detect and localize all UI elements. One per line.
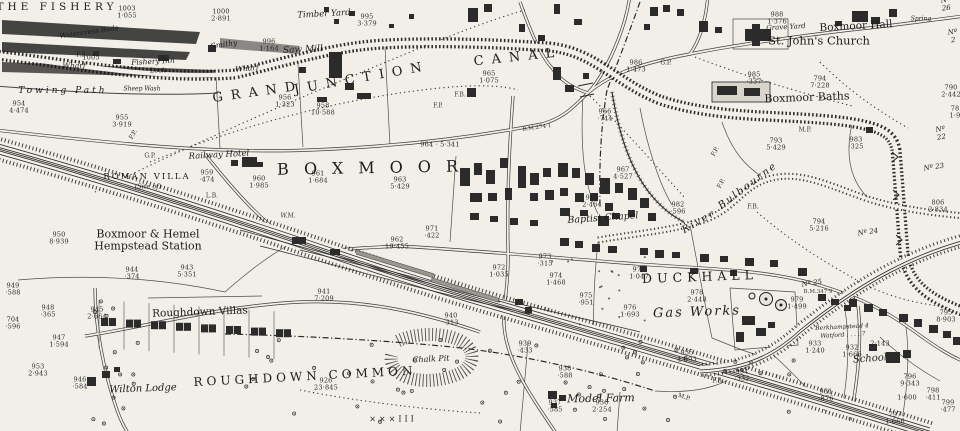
parcel-806: 806 2·834: [928, 200, 948, 215]
parcel-704: 704 ·596: [5, 317, 20, 332]
label-wharf-2: Wharf: [235, 64, 259, 74]
label-lock-no23: Nº 23: [923, 163, 944, 174]
parcel-962: 962 19·455: [385, 237, 409, 252]
parcel-1005: 1005: [82, 54, 99, 61]
label-fp-3: F.P.: [717, 178, 728, 190]
parcel-996: 996 1·164: [259, 39, 279, 54]
label-canal: CANAL: [473, 46, 563, 70]
parcel-979: 979 1·499: [787, 297, 807, 312]
parcel-797: 797 1·666: [885, 412, 905, 427]
label-chalk-pit: Chalk Pit: [412, 355, 450, 366]
label-lock-no25: Nº 25: [801, 279, 822, 290]
label-lock: Lock: [150, 67, 166, 74]
label-fp-1: F.P.: [433, 104, 443, 111]
parcel-947: 947 1·594: [49, 335, 69, 350]
parcel-955: 955 3·919: [112, 115, 132, 130]
label-bm-1: B.M.274·1: [522, 123, 551, 133]
parcel-1000: 1000 2·891: [211, 9, 231, 24]
parcel-968: 968 2·464: [582, 195, 602, 210]
parcel-794a: 794 7·228: [810, 76, 830, 91]
parcel-960: 960 1·985: [249, 176, 269, 191]
parcel-973: 973 ·315: [537, 254, 552, 269]
parcel-966: 966 ·744: [597, 109, 612, 124]
parcel-940: 940 ·313: [443, 313, 458, 328]
parcel-935: 935 4·693: [677, 350, 697, 365]
parcel-978: 978 2·448: [687, 290, 707, 305]
parcel-977: 977 1·047: [629, 267, 649, 282]
parcel-795: 795 8·903: [936, 310, 956, 325]
label-st-johns-church: St. John's Church: [768, 35, 870, 48]
label-lock-no21: Nº 2: [947, 29, 958, 46]
parcel-995: 995 3·379: [357, 14, 377, 29]
label-lock-no24: Nº 24: [857, 228, 878, 239]
parcel-945: 945 2·664: [87, 307, 107, 322]
parcel-986: 986 1·473: [626, 60, 646, 75]
label-spring: Spring: [911, 17, 931, 24]
parcel-971: 971 ·422: [424, 226, 439, 241]
label-boxmoor: BOXMOOR: [277, 157, 473, 178]
label-fb-4: F.B.: [712, 379, 723, 386]
label-wm: W.M.: [280, 214, 295, 221]
label-duckhall: DUCKHALL: [642, 268, 758, 286]
label-baptist-chapel: Baptist Chapel: [567, 211, 639, 227]
parcel-799: 799 ·477: [940, 400, 955, 415]
parcel-967: 967 4·527: [613, 167, 633, 182]
label-bulbourne: Bulbourne: [716, 160, 779, 212]
label-gas-works: Gas Works: [653, 304, 741, 322]
parcel-793: 793 5·429: [766, 138, 786, 153]
label-saw-mill: Saw Mill: [283, 44, 323, 56]
label-boxmoor-baths: Boxmoor Baths: [764, 90, 850, 105]
label-wilton-lodge: Wilton Lodge: [109, 382, 177, 396]
label-gp-2: G.P.: [660, 61, 671, 68]
parcel-983: 983 ·325: [848, 137, 863, 152]
label-school: School: [853, 352, 888, 366]
label-wharf-1: Wharf: [62, 62, 85, 70]
parcel-982: 982 ·596: [670, 202, 685, 217]
label-fb-2: F.B.: [454, 93, 465, 100]
parcel-965: 965 1·075: [479, 71, 499, 86]
label-roughdown-common: ROUGHDOWN COMMON: [193, 364, 416, 389]
parcel-934: 934 ·332: [734, 369, 749, 384]
label-roman-villa: ROMAN VILLA: [103, 173, 190, 183]
label-boxmoor-hall: Boxmoor Hall: [819, 19, 893, 35]
parcel-958: 958 10·588: [311, 103, 335, 118]
parcel-1600: 1·600: [897, 394, 917, 401]
label-grave-yard: Grave Yard: [766, 23, 806, 33]
label-sheep-wash: Sheep Wash: [124, 87, 161, 94]
parcel-954: 954 4·474: [9, 101, 29, 116]
parcel-794b: 794 5·216: [809, 219, 829, 234]
label-timber-yard: Timber Yard: [297, 9, 351, 21]
label-berkhamsted: Berkhampstead 4: [815, 323, 869, 333]
parcel-931: 931 ·876: [818, 389, 833, 404]
parcel-790: 790 2·442: [941, 85, 960, 100]
label-roman-villa-site: (Site of): [135, 183, 161, 190]
parcel-964: 964 · 5·341: [420, 141, 459, 148]
label-model-farm: Model Farm: [567, 392, 635, 405]
parcel-943: 943 5·351: [177, 265, 197, 280]
parcel-988: 988 1·376: [767, 12, 787, 27]
label-watford: Watford . . . . 7: [820, 331, 865, 340]
parcel-941: 941 7·209: [314, 289, 334, 304]
label-fp-4: F.P.: [129, 129, 140, 141]
parcel-974: 974 1·468: [546, 273, 566, 288]
parcel-939: 939 ·433: [517, 341, 532, 356]
parcel-937: 937 ·585: [547, 400, 562, 415]
parcel-972: 972 1·035: [489, 265, 509, 280]
label-lock-no26: Nº 26: [938, 0, 954, 14]
parcel-976: 976 1·693: [620, 305, 640, 320]
label-watercress-beds: Watercress Beds: [59, 25, 119, 41]
parcel-950: 950 8·939: [49, 232, 69, 247]
parcel-959: 959 ·474: [199, 170, 214, 185]
label-river: River: [680, 208, 718, 236]
parcel-944: 944 ·374: [124, 267, 139, 282]
label-fp-2: F.P.: [711, 146, 722, 158]
parcel-1003: 1003 1·055: [117, 6, 137, 21]
label-lb: L.B.: [206, 194, 218, 201]
label-bm-2: B.M.347·9: [804, 289, 833, 295]
label-mp-1: M.P.: [799, 128, 812, 135]
parcel-961: 961 1·684: [308, 171, 328, 186]
label-lock-no22: Nº 22: [931, 125, 952, 143]
label-the-fishery: THE FISHERY: [0, 2, 118, 14]
parcel-953: 953 2·943: [28, 364, 48, 379]
label-station: Boxmoor & Hemel Hempstead Station: [94, 229, 201, 254]
parcel-946: 946 ·584: [72, 377, 87, 392]
parcel-963: 963 5·429: [390, 177, 410, 192]
label-roughdown-villas: Roughdown Villas: [152, 305, 248, 320]
label-fb-1: F.B.: [76, 53, 87, 60]
parcel-926: 926 23·845: [314, 378, 338, 393]
parcel-956: 956 1·323: [275, 95, 295, 110]
parcel-985: 985 ·337: [746, 72, 761, 87]
label-grand: GRAND: [212, 79, 304, 106]
parcel-936: 936 2·254: [592, 400, 612, 415]
parcel-798: 798 ·411: [925, 388, 940, 403]
label-gp-1: G.P.: [144, 154, 155, 161]
parcel-975: 975 ·951: [578, 293, 593, 308]
parcel-2143: 2·143: [870, 340, 890, 347]
label-towing-path: Towing Path: [18, 86, 107, 96]
parcel-933: 933 1·240: [805, 341, 825, 356]
map-labels: THE FISHERYGRANDJUNCTIONCANALBOXMOORROUG…: [0, 0, 960, 431]
label-smithy: Smithy: [210, 39, 238, 51]
label-fishery-inn: Fishery Inn: [131, 57, 175, 68]
parcel-932: 932 1·666: [842, 345, 862, 360]
label-fb-3: F.B.: [747, 205, 758, 212]
parcel-949: 949 ·588: [5, 283, 20, 298]
parcel-78x: 78 1·9: [950, 106, 960, 121]
parcel-796: 796 9·343: [900, 374, 920, 389]
parcel-938: 938 ·588: [557, 366, 572, 381]
label-mp-2: M.P.: [677, 393, 691, 403]
map: THE FISHERYGRANDJUNCTIONCANALBOXMOORROUG…: [0, 0, 960, 431]
label-railway-hotel: Railway Hotel: [188, 150, 249, 163]
label-xxx-marks: ×××III: [369, 416, 417, 425]
parcel-948: 948 ·365: [40, 305, 55, 320]
label-junction: JUNCTION: [293, 60, 431, 98]
